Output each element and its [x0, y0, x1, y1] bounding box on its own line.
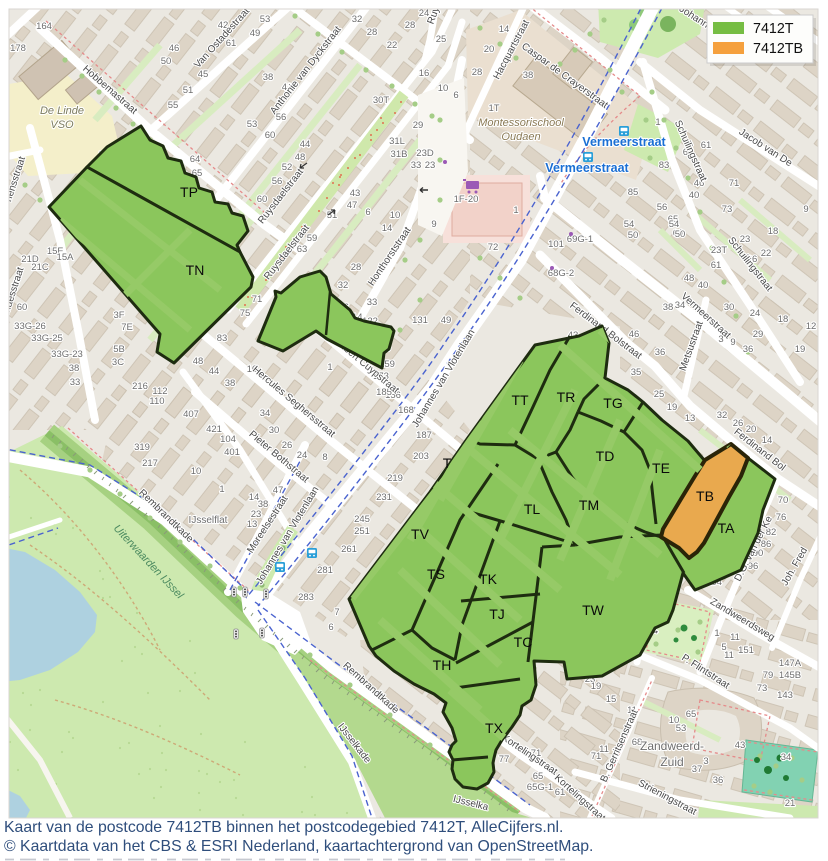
svg-text:6: 6 [328, 622, 333, 633]
svg-text:22: 22 [387, 40, 398, 51]
svg-text:Zuid: Zuid [660, 755, 683, 769]
svg-text:32: 32 [352, 14, 363, 25]
svg-text:VSO: VSO [50, 119, 74, 131]
svg-text:44: 44 [300, 139, 311, 150]
svg-text:1: 1 [655, 117, 660, 128]
svg-text:15A: 15A [57, 252, 75, 263]
svg-text:25: 25 [436, 34, 447, 45]
svg-text:43: 43 [735, 740, 746, 751]
svg-text:48: 48 [684, 273, 695, 284]
svg-text:19: 19 [591, 681, 602, 692]
svg-text:70: 70 [778, 495, 789, 506]
svg-text:147A: 147A [779, 658, 802, 669]
svg-text:20: 20 [484, 44, 495, 55]
svg-text:Vermeerstraat: Vermeerstraat [582, 135, 666, 149]
svg-text:59: 59 [307, 233, 318, 244]
svg-text:64: 64 [190, 154, 201, 165]
svg-text:60: 60 [265, 130, 276, 141]
svg-text:61: 61 [711, 260, 722, 271]
svg-text:34: 34 [260, 408, 271, 419]
svg-text:281: 281 [317, 565, 333, 576]
svg-text:51: 51 [183, 85, 194, 96]
svg-text:38: 38 [663, 302, 674, 313]
svg-text:110: 110 [149, 396, 164, 407]
svg-text:53: 53 [260, 14, 271, 25]
svg-text:143: 143 [777, 690, 793, 701]
svg-text:168: 168 [398, 405, 414, 416]
svg-text:53: 53 [676, 723, 687, 734]
svg-text:14: 14 [762, 435, 773, 446]
svg-text:24: 24 [750, 308, 761, 319]
svg-text:30: 30 [724, 302, 735, 313]
svg-text:21C: 21C [31, 262, 49, 273]
svg-text:21: 21 [785, 798, 796, 809]
svg-text:37: 37 [692, 764, 703, 775]
svg-text:40: 40 [698, 280, 709, 291]
svg-text:12: 12 [806, 321, 817, 332]
svg-text:44: 44 [209, 366, 220, 377]
svg-text:261: 261 [341, 544, 357, 555]
svg-text:33: 33 [367, 297, 378, 308]
svg-text:22: 22 [761, 248, 772, 259]
svg-text:9: 9 [431, 219, 436, 230]
svg-text:6: 6 [365, 207, 370, 218]
svg-text:TX: TX [485, 720, 504, 736]
svg-text:56: 56 [272, 176, 283, 187]
svg-text:1: 1 [714, 628, 719, 639]
svg-text:5B: 5B [113, 344, 125, 355]
svg-text:18: 18 [768, 226, 779, 237]
svg-text:26: 26 [282, 440, 293, 451]
svg-text:8: 8 [322, 452, 327, 463]
svg-text:© Kaartdata van het CBS & ESRI: © Kaartdata van het CBS & ESRI Nederland… [4, 838, 593, 855]
svg-text:Vermeerstraat: Vermeerstraat [545, 161, 629, 175]
svg-text:36: 36 [713, 775, 724, 786]
svg-text:145B: 145B [779, 670, 801, 681]
svg-text:65: 65 [686, 709, 697, 720]
svg-text:1F-20: 1F-20 [454, 194, 479, 205]
svg-text:TJ: TJ [489, 606, 505, 622]
svg-text:65G-1: 65G-1 [527, 782, 553, 793]
svg-text:85: 85 [628, 187, 639, 198]
svg-text:217: 217 [142, 458, 158, 469]
svg-text:33G-26: 33G-26 [14, 321, 46, 332]
svg-text:48: 48 [193, 356, 204, 367]
svg-text:83: 83 [217, 333, 228, 344]
svg-text:28: 28 [472, 67, 483, 78]
svg-text:40: 40 [689, 190, 700, 201]
svg-text:TD: TD [596, 448, 615, 464]
svg-text:7412T: 7412T [753, 21, 794, 37]
svg-text:24: 24 [297, 450, 308, 461]
svg-text:29: 29 [413, 120, 424, 131]
svg-text:36: 36 [655, 347, 666, 358]
svg-text:216: 216 [132, 381, 148, 392]
svg-text:23D: 23D [416, 148, 434, 159]
svg-text:164: 164 [36, 21, 52, 32]
svg-text:50: 50 [628, 230, 639, 241]
svg-text:49: 49 [441, 315, 452, 326]
svg-text:52: 52 [282, 162, 293, 173]
svg-text:11: 11 [730, 632, 740, 643]
svg-text:TA: TA [718, 520, 736, 536]
svg-text:245: 245 [354, 514, 370, 525]
svg-text:19: 19 [795, 344, 806, 355]
svg-text:401: 401 [224, 447, 240, 458]
svg-text:151: 151 [738, 645, 754, 656]
svg-text:10: 10 [438, 83, 449, 94]
svg-text:77: 77 [499, 754, 510, 765]
svg-text:6: 6 [453, 90, 458, 101]
svg-text:19: 19 [667, 402, 678, 413]
svg-text:33: 33 [411, 160, 422, 171]
svg-text:23T: 23T [711, 245, 728, 256]
svg-text:TL: TL [524, 501, 541, 517]
svg-text:14: 14 [382, 223, 393, 234]
svg-text:9: 9 [730, 337, 735, 348]
svg-text:231: 231 [376, 492, 392, 503]
svg-text:33G-25: 33G-25 [31, 333, 63, 344]
svg-text:TB: TB [696, 488, 714, 504]
svg-text:3F: 3F [113, 310, 124, 321]
svg-text:16: 16 [419, 68, 430, 79]
svg-text:73: 73 [757, 683, 768, 694]
svg-text:Oudaen: Oudaen [501, 131, 540, 143]
svg-text:203: 203 [413, 451, 429, 462]
svg-text:38: 38 [263, 72, 274, 83]
svg-text:104: 104 [220, 434, 236, 445]
svg-text:18: 18 [778, 314, 789, 325]
svg-text:15: 15 [606, 694, 617, 705]
svg-text:TE: TE [652, 460, 670, 476]
svg-text:38: 38 [69, 363, 80, 374]
svg-text:49: 49 [250, 28, 261, 39]
svg-text:25: 25 [654, 389, 665, 400]
svg-text:34: 34 [781, 752, 792, 763]
svg-text:71: 71 [252, 294, 263, 305]
svg-text:43: 43 [350, 188, 361, 199]
svg-text:178: 178 [10, 43, 26, 54]
svg-text:TM: TM [579, 497, 599, 513]
svg-text:46: 46 [169, 43, 180, 54]
svg-text:3C: 3C [112, 357, 124, 368]
svg-text:TH: TH [433, 657, 452, 673]
svg-text:72: 72 [488, 242, 499, 253]
svg-text:38: 38 [225, 378, 236, 389]
svg-text:TG: TG [603, 395, 622, 411]
svg-text:Zandweerd-: Zandweerd- [640, 739, 704, 753]
svg-text:33: 33 [70, 377, 81, 388]
svg-text:10: 10 [191, 466, 202, 477]
svg-text:29: 29 [753, 329, 764, 340]
svg-text:7: 7 [334, 607, 339, 618]
svg-text:TT: TT [511, 392, 529, 408]
svg-text:101: 101 [548, 239, 564, 250]
svg-text:50: 50 [161, 56, 172, 67]
svg-text:219: 219 [387, 473, 403, 484]
svg-text:73: 73 [722, 204, 733, 215]
svg-text:83: 83 [659, 160, 670, 171]
svg-text:10: 10 [390, 210, 401, 221]
svg-text:28: 28 [405, 20, 416, 31]
svg-text:48: 48 [295, 152, 306, 163]
svg-text:Montessorischool: Montessorischool [478, 117, 564, 129]
svg-text:TK: TK [479, 571, 498, 587]
svg-text:38: 38 [523, 70, 534, 81]
svg-text:251: 251 [354, 526, 370, 537]
svg-text:TW: TW [582, 602, 605, 618]
svg-text:TS: TS [427, 566, 445, 582]
svg-text:13: 13 [247, 519, 258, 530]
svg-text:65: 65 [533, 771, 544, 782]
svg-text:1: 1 [327, 362, 332, 373]
svg-text:54: 54 [624, 219, 635, 230]
svg-text:407: 407 [183, 409, 199, 420]
svg-text:28: 28 [367, 27, 378, 38]
svg-text:60: 60 [257, 194, 268, 205]
svg-text:TC: TC [514, 634, 533, 650]
svg-text:46: 46 [629, 329, 640, 340]
svg-text:75: 75 [240, 308, 251, 319]
svg-text:IJsselflat: IJsselflat [189, 515, 228, 526]
svg-text:33G-23: 33G-23 [51, 349, 83, 360]
svg-text:30: 30 [269, 425, 280, 436]
svg-text:131: 131 [412, 315, 428, 326]
svg-text:32: 32 [338, 280, 349, 291]
svg-text:79: 79 [763, 670, 774, 681]
svg-text:30T: 30T [373, 95, 390, 106]
svg-text:36: 36 [743, 344, 754, 355]
svg-text:14: 14 [499, 24, 510, 35]
svg-text:TP: TP [180, 184, 198, 200]
svg-text:23: 23 [425, 160, 436, 171]
svg-text:50: 50 [675, 229, 686, 240]
svg-text:31B: 31B [391, 149, 408, 160]
svg-text:1: 1 [513, 205, 518, 216]
svg-text:11: 11 [599, 744, 609, 755]
svg-text:TN: TN [186, 262, 205, 278]
svg-text:187: 187 [416, 430, 432, 441]
svg-text:47: 47 [347, 200, 358, 211]
svg-text:319: 319 [134, 442, 150, 453]
svg-text:283: 283 [298, 592, 314, 603]
svg-text:32: 32 [717, 410, 728, 421]
svg-text:60: 60 [17, 302, 28, 313]
svg-text:Kaart van de postcode 7412TB b: Kaart van de postcode 7412TB binnen het … [4, 819, 563, 836]
svg-text:11: 11 [724, 650, 734, 661]
svg-text:14: 14 [249, 492, 260, 503]
svg-text:28: 28 [351, 262, 362, 273]
svg-text:55: 55 [168, 100, 179, 111]
svg-text:31L: 31L [389, 136, 405, 147]
svg-text:35: 35 [631, 367, 642, 378]
svg-text:7E: 7E [121, 322, 133, 333]
svg-text:1T: 1T [488, 103, 499, 114]
svg-text:TV: TV [411, 526, 430, 542]
svg-text:De Linde: De Linde [40, 105, 84, 117]
svg-text:61: 61 [701, 140, 712, 151]
svg-text:TR: TR [557, 389, 576, 405]
svg-text:7412TB: 7412TB [753, 41, 803, 57]
svg-text:T: T [443, 455, 452, 471]
svg-text:3: 3 [703, 756, 708, 767]
svg-text:13: 13 [685, 413, 696, 424]
svg-text:71: 71 [729, 178, 740, 189]
svg-text:9: 9 [803, 204, 808, 215]
svg-text:1: 1 [219, 484, 224, 495]
svg-text:76: 76 [776, 512, 787, 523]
svg-text:53: 53 [247, 119, 258, 130]
svg-text:56: 56 [657, 202, 668, 213]
